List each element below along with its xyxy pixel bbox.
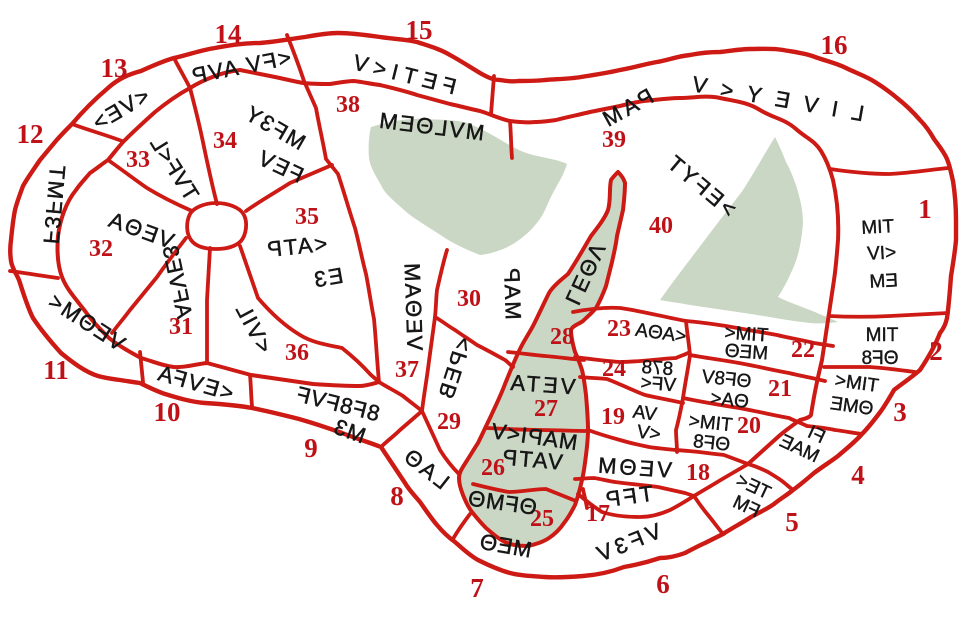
svg-text:39: 39 — [602, 127, 626, 153]
svg-text:22: 22 — [791, 337, 815, 363]
svg-text:15: 15 — [406, 15, 433, 45]
svg-text:<V: <V — [635, 421, 662, 445]
svg-text:32: 32 — [89, 236, 113, 262]
svg-text:8: 8 — [390, 481, 404, 511]
svg-text:MAP: MAP — [499, 265, 526, 320]
svg-text:23: 23 — [607, 316, 631, 342]
svg-text:14: 14 — [215, 19, 242, 49]
svg-text:1: 1 — [918, 194, 932, 224]
svg-text:12: 12 — [17, 119, 44, 149]
svg-text:24: 24 — [602, 356, 626, 382]
svg-text:37: 37 — [395, 357, 419, 383]
svg-text:VEΘAM: VEΘAM — [399, 261, 427, 351]
svg-text:VETA: VETA — [507, 370, 576, 400]
svg-text:30: 30 — [457, 286, 481, 312]
svg-text:27: 27 — [534, 396, 558, 422]
svg-text:11: 11 — [43, 355, 69, 385]
svg-text:VF<: VF< — [640, 373, 677, 396]
svg-text:VEΘM: VEΘM — [594, 452, 672, 482]
svg-text:ΘF8: ΘF8 — [692, 431, 731, 456]
svg-text:ΘF8: ΘF8 — [862, 348, 899, 369]
svg-text:TIM: TIM — [861, 216, 895, 239]
svg-text:EM: EM — [869, 270, 899, 292]
svg-text:33: 33 — [126, 147, 150, 173]
svg-text:MEΘ: MEΘ — [724, 341, 769, 365]
svg-text:2: 2 — [929, 336, 943, 366]
svg-text:21: 21 — [768, 376, 792, 402]
svg-text:5: 5 — [785, 507, 799, 537]
svg-text:29: 29 — [437, 409, 461, 435]
svg-text:35: 35 — [295, 204, 319, 230]
svg-text:40: 40 — [649, 213, 673, 239]
svg-text:E3: E3 — [310, 263, 345, 293]
svg-text:13: 13 — [101, 53, 128, 83]
svg-text:<IV: <IV — [866, 242, 896, 265]
svg-text:28: 28 — [550, 324, 574, 350]
svg-text:36: 36 — [285, 340, 309, 366]
svg-text:18: 18 — [686, 460, 710, 486]
svg-text:7: 7 — [470, 573, 484, 603]
svg-text:3: 3 — [893, 397, 907, 427]
svg-text:6: 6 — [656, 569, 670, 599]
svg-text:TIM: TIM — [866, 325, 899, 346]
svg-text:ΘA<: ΘA< — [709, 388, 750, 413]
svg-text:10: 10 — [154, 397, 181, 427]
svg-text:16: 16 — [821, 30, 848, 60]
svg-text:38: 38 — [336, 92, 360, 118]
svg-text:20: 20 — [737, 413, 761, 439]
svg-text:19: 19 — [601, 404, 625, 430]
svg-text:34: 34 — [213, 128, 237, 154]
svg-text:4: 4 — [851, 460, 865, 490]
svg-text:9: 9 — [304, 433, 318, 463]
